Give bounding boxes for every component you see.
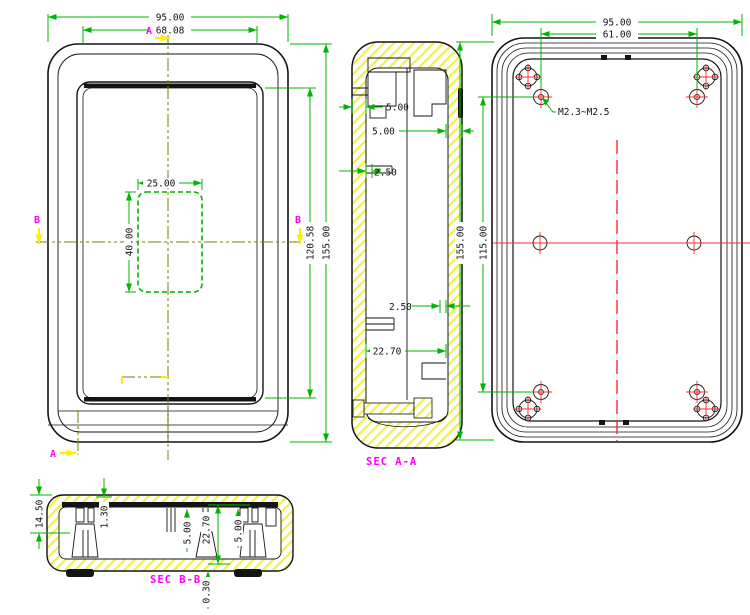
section-a-jog (78, 377, 168, 455)
section-aa-view: 5.00 5.00 2.50 2.50 22.70 SEC A-A (339, 42, 474, 468)
section-marker-b-right: B (295, 215, 301, 226)
dim-front-overall-width: 95.00 (156, 13, 185, 24)
front-panel-bottom-edge (84, 397, 256, 402)
section-marker-a-bottom: A (50, 449, 56, 460)
front-dimensions: 95.00 68.08 25.00 40.00 120.58 1 (48, 12, 333, 442)
dim-secaa-top-boss: 5.00 (386, 103, 409, 114)
section-marker-a-top: A (146, 26, 152, 37)
front-panel-inner-contour (83, 88, 257, 398)
dim-back-boss-span-x: 61.00 (603, 30, 632, 41)
dim-secbb-cavity: 22.70 (202, 515, 213, 544)
dim-cutout-height: 40.00 (125, 227, 136, 256)
back-screw-bosses (530, 86, 708, 403)
cad-drawing-page: 95.00 68.08 25.00 40.00 120.58 1 (0, 0, 750, 615)
jog-corner-ticks (122, 377, 168, 384)
section-bb-title: SEC B-B (150, 574, 201, 586)
dim-secaa-rib-lower: 2.50 (389, 302, 412, 313)
dim-secaa-rib-upper: 2.50 (374, 168, 397, 179)
back-dimensions: 95.00 61.00 155.00 115.00 M2.3~M2.5 (455, 14, 742, 440)
section-aa-title: SEC A-A (366, 456, 417, 468)
dim-secbb-clearance: 0.30 (202, 580, 213, 603)
section-bb-view: 14.50 1.30 5.00 22.70 5.00 (30, 478, 293, 609)
front-panel-contour (77, 82, 263, 404)
front-panel-top-edge (84, 84, 256, 89)
thread-note-text: M2.3~M2.5 (558, 107, 609, 118)
front-view: 95.00 68.08 25.00 40.00 120.58 1 (34, 12, 333, 460)
dim-secbb-total-height: 14.50 (35, 499, 46, 528)
dim-secaa-side-wall: 5.00 (372, 127, 395, 138)
drawing-canvas: 95.00 68.08 25.00 40.00 120.58 1 (0, 0, 750, 615)
section-marker-b-left: B (34, 215, 40, 226)
dim-cutout-width: 25.00 (147, 179, 176, 190)
dim-secbb-boss-mid: 5.00 (183, 521, 194, 544)
dim-front-opening-height: 120.58 (306, 226, 317, 261)
dim-back-overall-height: 155.00 (456, 226, 467, 261)
dim-back-boss-span-y: 115.00 (479, 226, 490, 261)
dim-secaa-cavity-depth: 22.70 (373, 347, 402, 358)
secbb-foot-left (66, 569, 94, 577)
dim-back-overall-width: 95.00 (603, 18, 632, 29)
dim-secbb-lip: 1.30 (100, 505, 111, 528)
dim-secbb-boss-right: 5.00 (234, 519, 245, 542)
dim-front-overall-height: 155.00 (322, 226, 333, 261)
back-view: 95.00 61.00 155.00 115.00 M2.3~M2.5 (455, 14, 750, 442)
dim-front-opening-width: 68.08 (156, 26, 185, 37)
thread-note-leader (546, 103, 556, 112)
secbb-foot-right (234, 569, 262, 577)
